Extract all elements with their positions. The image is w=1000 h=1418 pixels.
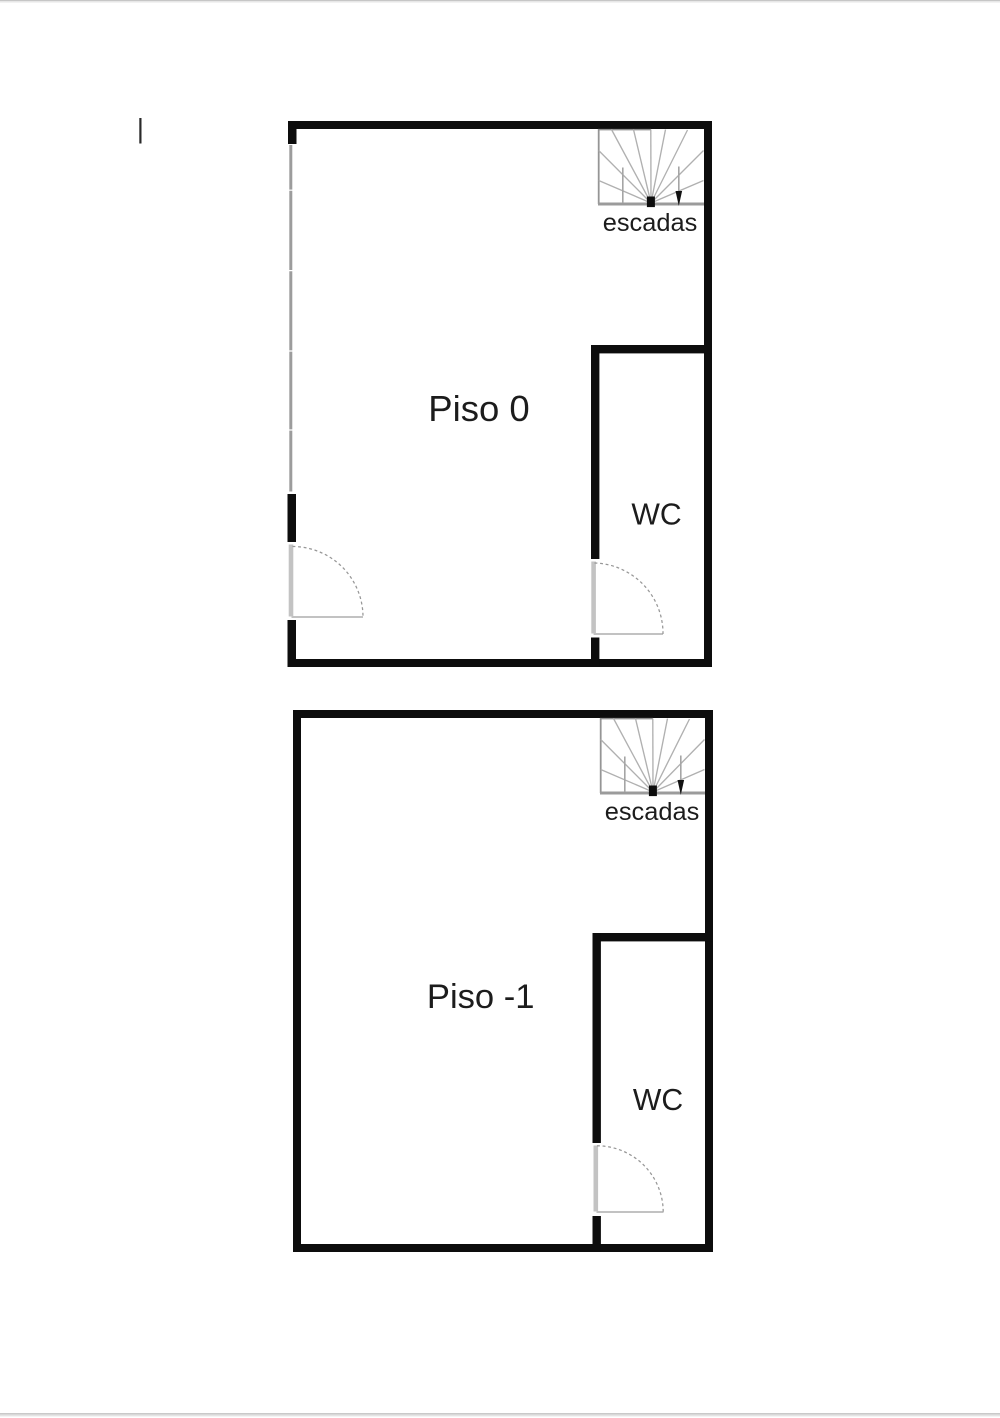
svg-text:escadas: escadas bbox=[603, 209, 698, 237]
svg-text:Piso 0: Piso 0 bbox=[428, 388, 529, 429]
svg-text:WC: WC bbox=[631, 498, 681, 531]
svg-text:escadas: escadas bbox=[605, 798, 700, 826]
svg-text:Piso -1: Piso -1 bbox=[427, 978, 535, 1016]
svg-text:WC: WC bbox=[633, 1084, 683, 1117]
